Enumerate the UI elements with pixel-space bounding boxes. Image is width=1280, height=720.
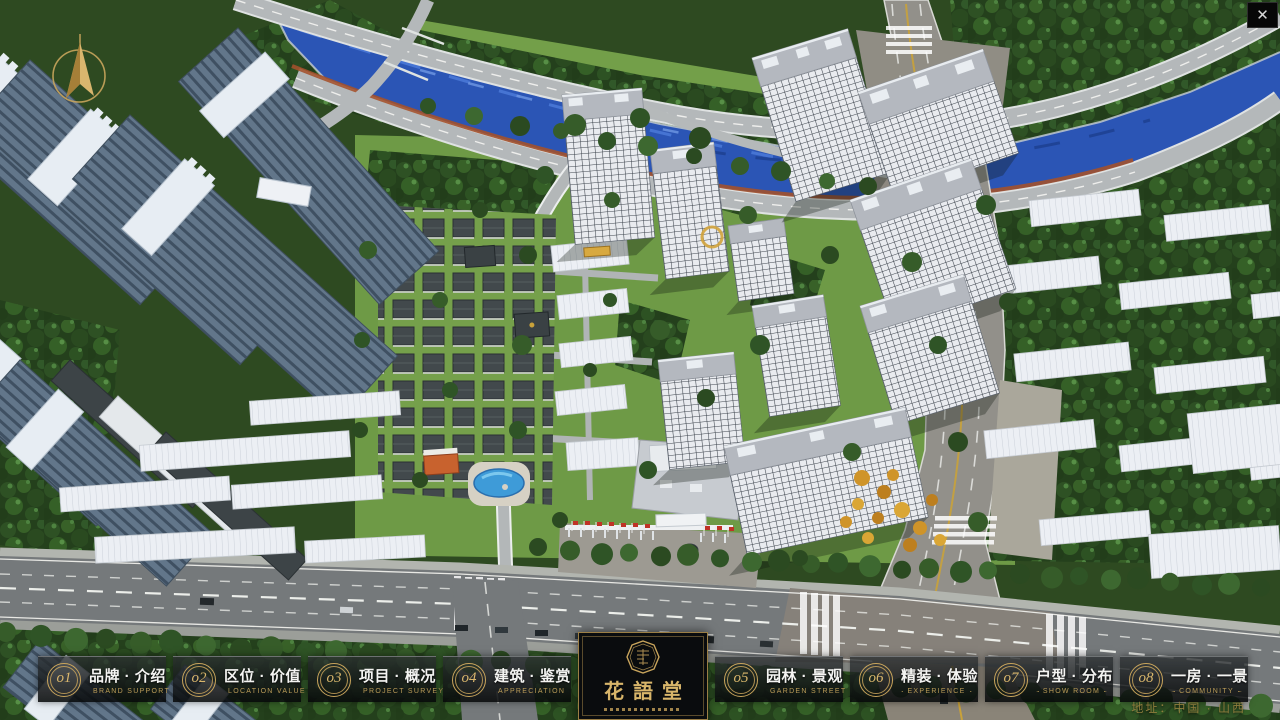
menu-label-zh: 区位 · 价值 xyxy=(224,665,295,686)
menu-label-zh: 一房 · 一景 xyxy=(1171,665,1242,686)
menu-label-en: COMMUNITY xyxy=(1171,688,1242,695)
menu-number-badge: o8 xyxy=(1129,663,1163,697)
menu-label-en: EXPERIENCE xyxy=(901,688,972,695)
menu-number-badge: o6 xyxy=(859,663,893,697)
menu-number-badge: o3 xyxy=(317,663,351,697)
menu-label-zh: 建筑 · 鉴赏 xyxy=(494,665,565,686)
menu-item-floorplans[interactable]: o7 户型 · 分布 SHOW ROOM xyxy=(985,656,1113,702)
logo-title: 花語堂 xyxy=(595,675,691,704)
menu-item-garden[interactable]: o5 园林 · 景观 GARDEN STREET xyxy=(715,656,843,702)
menu-label-en: APPRECIATION xyxy=(494,688,565,695)
menu-label-en: GARDEN STREET xyxy=(766,688,837,695)
menu-number-badge: o7 xyxy=(994,663,1028,697)
menu-label-en: BRAND SUPPORT xyxy=(89,688,160,695)
menu-label-zh: 品牌 · 介绍 xyxy=(89,665,160,686)
menu-label-zh: 项目 · 概况 xyxy=(359,665,430,686)
menu-number-badge: o1 xyxy=(47,663,81,697)
presentation-stage: ✕ o1 品牌 · 介绍 BRAND SUPPORT o2 区位 · 价值 LO… xyxy=(0,0,1280,720)
menu-label-zh: 精装 · 体验 xyxy=(901,665,972,686)
logo-seal-icon xyxy=(626,640,660,674)
logo-subtitle-rule xyxy=(604,708,682,711)
menu-number-badge: o5 xyxy=(724,663,758,697)
menu-item-brand[interactable]: o1 品牌 · 介绍 BRAND SUPPORT xyxy=(38,656,166,702)
close-button[interactable]: ✕ xyxy=(1247,2,1278,28)
menu-label-zh: 园林 · 景观 xyxy=(766,665,837,686)
menu-item-architecture[interactable]: o4 建筑 · 鉴赏 APPRECIATION xyxy=(443,656,571,702)
menu-label-en: PROJECT SURVEY xyxy=(359,688,430,695)
bottom-menu-bar: o1 品牌 · 介绍 BRAND SUPPORT o2 区位 · 价值 LOCA… xyxy=(0,632,1280,720)
menu-item-interior[interactable]: o6 精装 · 体验 EXPERIENCE xyxy=(850,656,978,702)
menu-item-project[interactable]: o3 项目 · 概况 PROJECT SURVEY xyxy=(308,656,436,702)
menu-label-en: SHOW ROOM xyxy=(1036,688,1107,695)
masterplan-render-viewport[interactable] xyxy=(0,0,1280,720)
menu-label-en: LOCATION VALUE xyxy=(224,688,295,695)
logo-panel: 花語堂 xyxy=(578,632,708,720)
menu-number-badge: o4 xyxy=(452,663,486,697)
menu-number-badge: o2 xyxy=(182,663,216,697)
menu-item-location[interactable]: o2 区位 · 价值 LOCATION VALUE xyxy=(173,656,301,702)
address-text: 地址：中国 · 山西 xyxy=(1131,699,1246,716)
menu-label-zh: 户型 · 分布 xyxy=(1036,665,1107,686)
menu-item-views[interactable]: o8 一房 · 一景 COMMUNITY xyxy=(1120,656,1248,702)
